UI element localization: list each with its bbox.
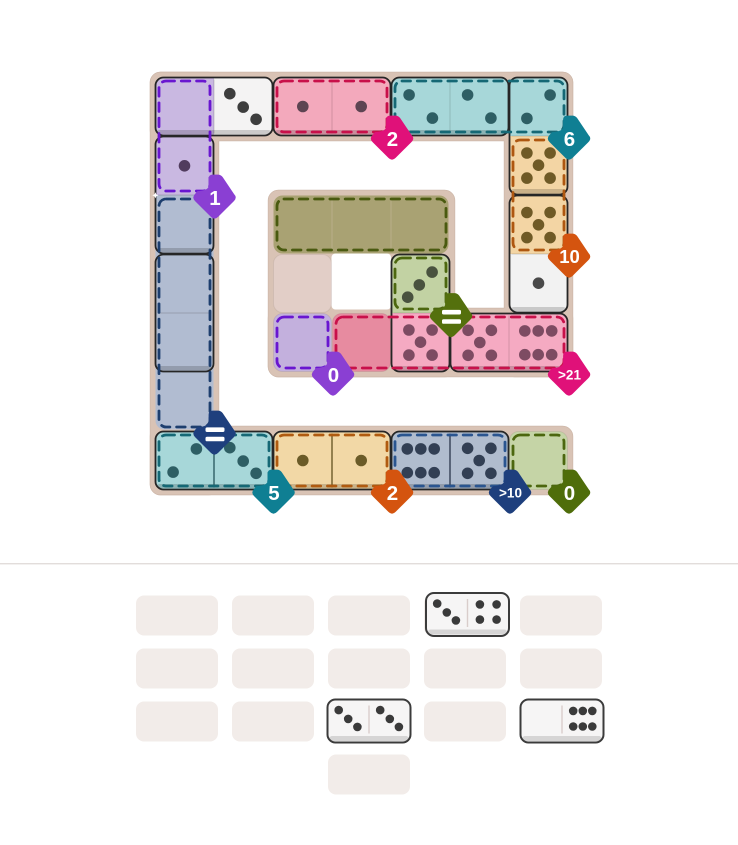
svg-text:0: 0 (564, 482, 575, 505)
svg-text:6: 6 (564, 128, 575, 151)
svg-text:1: 1 (209, 187, 220, 210)
svg-text:2: 2 (387, 128, 398, 151)
svg-text:2: 2 (387, 482, 398, 505)
svg-text:>10: >10 (499, 485, 522, 500)
svg-text:>21: >21 (558, 367, 581, 382)
svg-text:0: 0 (328, 364, 339, 387)
svg-text:5: 5 (268, 482, 279, 505)
svg-text:10: 10 (559, 246, 580, 267)
